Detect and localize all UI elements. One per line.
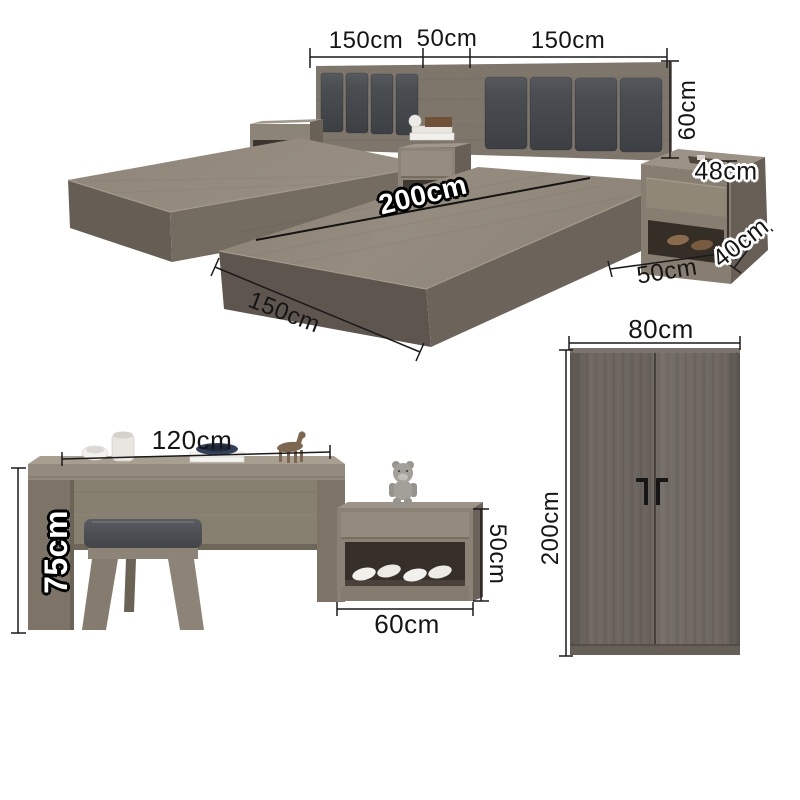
desk-height-label: 75cm xyxy=(40,510,72,594)
headboard-right-width-label: 150cm xyxy=(531,29,606,53)
stool xyxy=(82,519,204,630)
headboard-panel xyxy=(316,62,672,161)
nightstand-height-label: 48cm xyxy=(694,160,757,185)
wardrobe xyxy=(570,348,740,655)
headboard-height-label: 60cm xyxy=(676,80,700,141)
wardrobe-width-label: 80cm xyxy=(628,316,694,342)
headboard-left-width-label: 150cm xyxy=(329,29,404,53)
wardrobe-height-label: 200cm xyxy=(539,491,563,566)
stool-cushion xyxy=(84,519,202,548)
desk-width-label: 120cm xyxy=(152,427,233,453)
shoe-cabinet-width-label: 60cm xyxy=(374,611,440,637)
teddy-bear-figurine xyxy=(389,461,417,508)
shoe-cabinet xyxy=(337,461,483,601)
headboard-gap-width-label: 50cm xyxy=(417,27,478,51)
shoe-cabinet-height-label: 50cm xyxy=(485,524,509,585)
nightstand-decor-books xyxy=(409,115,454,140)
furniture-dimension-diagram: 150cm 50cm 150cm 60cm 48cm 200cm 40cm 50… xyxy=(0,0,800,800)
